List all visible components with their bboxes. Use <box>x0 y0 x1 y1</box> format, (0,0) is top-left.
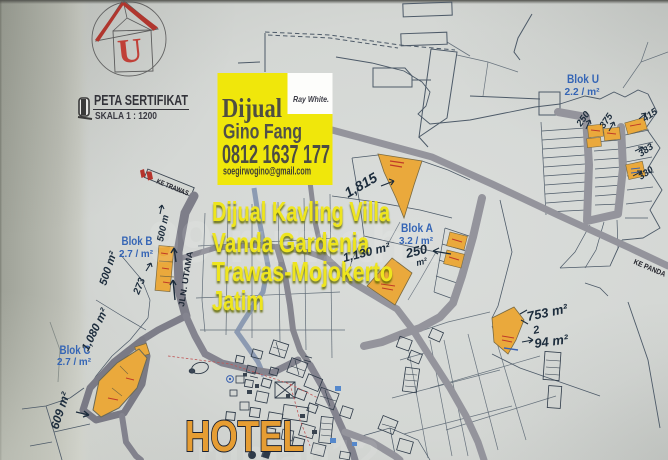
svg-text:2.7 / m²: 2.7 / m² <box>57 356 91 368</box>
svg-text:Blok A: Blok A <box>401 223 433 235</box>
svg-text:2.2 / m²: 2.2 / m² <box>565 86 600 98</box>
svg-text:Trawas-Mojokerto: Trawas-Mojokerto <box>212 256 393 287</box>
svg-text:Jatim: Jatim <box>212 285 264 316</box>
svg-text:Blok U: Blok U <box>567 74 599 86</box>
svg-text:soegirwogino@gmail.com: soegirwogino@gmail.com <box>223 166 311 178</box>
svg-text:HOTEL: HOTEL <box>185 412 304 460</box>
svg-text:U: U <box>116 32 144 71</box>
svg-text:0812 1637 177: 0812 1637 177 <box>222 139 330 169</box>
svg-text:Ray White.: Ray White. <box>293 94 329 104</box>
svg-text:Dijual Kavling Villa: Dijual Kavling Villa <box>212 196 390 227</box>
svg-text:PETA SERTIFIKAT: PETA SERTIFIKAT <box>94 93 188 109</box>
svg-text:2.7 / m²: 2.7 / m² <box>119 248 153 260</box>
svg-text:Blok B: Blok B <box>122 236 153 248</box>
svg-text:SKALA 1 : 1200: SKALA 1 : 1200 <box>95 111 157 122</box>
svg-text:Dijual: Dijual <box>222 93 282 123</box>
